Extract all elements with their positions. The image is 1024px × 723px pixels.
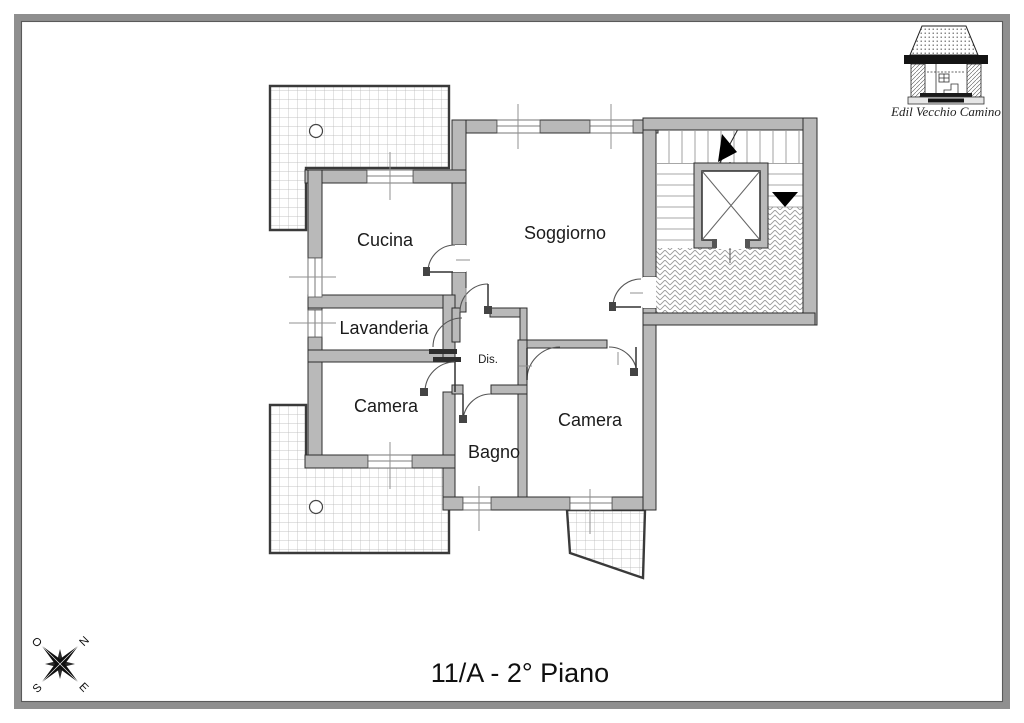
compass-south-label: S: [31, 682, 45, 696]
room-label-soggiorno: Soggiorno: [524, 223, 606, 243]
compass-east-label: E: [76, 681, 90, 695]
balcony-bottom-right: [567, 510, 645, 578]
door-camera2: [609, 347, 638, 376]
balcony-door: [570, 497, 612, 510]
room-label-disimpegno: Dis.: [478, 354, 498, 366]
stairwell: [656, 118, 803, 313]
drain-circle-icon: [310, 125, 323, 138]
room-label-bagno: Bagno: [468, 442, 520, 462]
cucina-door-opening: [452, 245, 466, 272]
door-bagno: [459, 394, 491, 423]
terrace-top-left: [270, 86, 449, 230]
room-label-cucina: Cucina: [357, 230, 414, 250]
terrace-bottom-left: [270, 405, 449, 553]
logo-text: Edil Vecchio Camino: [890, 104, 1001, 119]
floorplan-drawing: Cucina Soggiorno Lavanderia Camera Camer…: [0, 0, 1024, 723]
floorplan-page: Cucina Soggiorno Lavanderia Camera Camer…: [0, 0, 1024, 723]
company-logo: Edil Vecchio Camino: [890, 26, 1001, 119]
fireplace-logo-icon: [904, 26, 988, 104]
floor-title: 11/A - 2° Piano: [431, 658, 609, 688]
drain-circle-icon: [310, 501, 323, 514]
door-cucina: [423, 245, 455, 276]
compass-north-label: N: [78, 635, 92, 649]
door-camera1: [420, 362, 455, 396]
door-entrance: [609, 279, 641, 311]
landing-hatch: [768, 207, 803, 248]
room-label-camera-1: Camera: [354, 396, 419, 416]
elevator-icon: [694, 163, 768, 263]
window-bagno-bottom: [463, 497, 491, 510]
down-triangle-icon: [772, 192, 798, 207]
compass-west-label: O: [29, 635, 44, 650]
room-label-camera-2: Camera: [558, 410, 623, 430]
room-label-lavanderia: Lavanderia: [339, 318, 429, 338]
entrance-opening: [643, 277, 656, 308]
compass-rose-icon: [42, 646, 79, 683]
compass-rose: N O E S: [29, 635, 92, 696]
door-dis-soggiorno: [460, 284, 560, 380]
